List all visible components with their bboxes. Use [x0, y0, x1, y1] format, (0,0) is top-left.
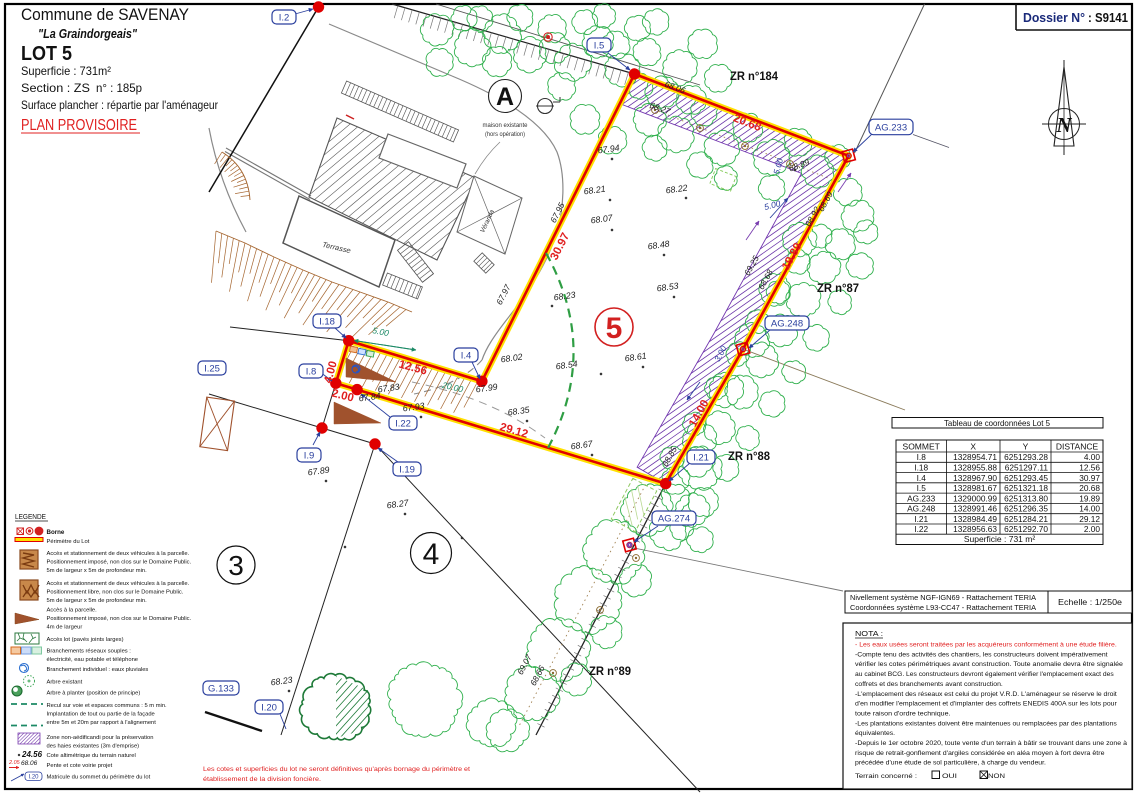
svg-text:au cabinet BCG. Les constructe: au cabinet BCG. Les constructeurs devron…: [855, 671, 1114, 678]
svg-text:Nivellement système NGF-IGN69: Nivellement système NGF-IGN69 - Rattache…: [850, 593, 1036, 602]
svg-text:Les cotes et superficies du lo: Les cotes et superficies du lot ne seron…: [203, 766, 470, 773]
svg-text:précédée d'une étude de sol pa: précédée d'une étude de sol particulière…: [855, 760, 1046, 767]
svg-text:Pente et cote voirie projet: Pente et cote voirie projet: [47, 763, 113, 769]
svg-text:68.06: 68.06: [21, 760, 38, 767]
svg-text:LEGENDE: LEGENDE: [15, 512, 46, 521]
svg-text:N: N: [1055, 113, 1072, 137]
svg-text:I.21: I.21: [914, 514, 928, 524]
svg-text:X: X: [970, 442, 976, 452]
svg-text:Accès lot (pavés joints larges: Accès lot (pavés joints larges): [47, 637, 124, 643]
svg-text:Positionnement imposé, non clo: Positionnement imposé, non clos sur le D…: [47, 560, 192, 566]
svg-text:I.20: I.20: [28, 775, 39, 781]
svg-text:AG.248: AG.248: [771, 318, 803, 329]
svg-text:risque de retrait-gonflement d: risque de retrait-gonflement d'argiles c…: [855, 750, 1105, 757]
svg-text:équivalentes.: équivalentes.: [855, 730, 895, 737]
svg-text:20.68: 20.68: [1079, 483, 1100, 493]
svg-text:Recul sur voie et espaces comm: Recul sur voie et espaces communs : 5 m …: [47, 703, 168, 709]
svg-text:I.2: I.2: [279, 12, 290, 23]
svg-text:DISTANCE: DISTANCE: [1056, 442, 1099, 452]
svg-text:2.00: 2.00: [1084, 524, 1101, 534]
svg-text:Echelle : 1/250e: Echelle : 1/250e: [1058, 598, 1123, 607]
svg-text:Terrain concerné :: Terrain concerné :: [855, 773, 917, 780]
svg-text:-Les plantations existantes do: -Les plantations existantes doivent être…: [855, 720, 1117, 727]
svg-text:Commune de SAVENAY: Commune de SAVENAY: [21, 5, 189, 24]
svg-text:Dossier N°: Dossier N°: [1023, 11, 1085, 25]
svg-text:ZR n°88: ZR n°88: [728, 451, 771, 463]
svg-text:OUI: OUI: [942, 773, 957, 780]
svg-text:(hors opération): (hors opération): [485, 131, 525, 138]
svg-text:Superficie : 731m²: Superficie : 731m²: [21, 64, 111, 78]
svg-text:Zone non-aédificandi pour la p: Zone non-aédificandi pour la préservatio…: [47, 735, 154, 741]
svg-text:AG.248: AG.248: [907, 504, 936, 514]
svg-text:- Les eaux usées seront traité: - Les eaux usées seront traitées par les…: [855, 642, 1117, 649]
svg-text:Implantation de tout ou partie: Implantation de tout ou partie de la faç…: [47, 712, 155, 718]
svg-text:6251293.45: 6251293.45: [1004, 473, 1048, 483]
svg-text:coffrets et des branchements a: coffrets et des branchements avant const…: [855, 681, 1003, 688]
svg-text:I.18: I.18: [319, 316, 335, 327]
svg-text:Cote altimétrique du terrain n: Cote altimétrique du terrain naturel: [47, 753, 136, 759]
svg-text:NON: NON: [988, 773, 1005, 780]
svg-text:I.21: I.21: [693, 452, 709, 463]
svg-text:Coordonnées système L93-CC47: Coordonnées système L93-CC47 - Rattachem…: [850, 603, 1036, 612]
svg-text:toute raison d'ordre technique: toute raison d'ordre technique.: [855, 711, 951, 718]
svg-text:1328956.63: 1328956.63: [953, 524, 997, 534]
svg-text:6251292.70: 6251292.70: [1004, 524, 1048, 534]
svg-text:"La Graindorgeais": "La Graindorgeais": [38, 27, 138, 41]
svg-text:12.56: 12.56: [1079, 463, 1100, 473]
svg-text:I.22: I.22: [395, 418, 411, 429]
svg-text:-L'emplacement des réseaux est: -L'emplacement des réseaux est celui du …: [855, 691, 1117, 698]
svg-text:G.133: G.133: [208, 683, 234, 694]
svg-text:Accès à la parcelle.: Accès à la parcelle.: [47, 608, 98, 614]
svg-text:d'en modifier l'emplacement et: d'en modifier l'emplacement et d'implant…: [855, 701, 1118, 708]
svg-text:4: 4: [423, 538, 440, 571]
svg-text:des haies existantes (3m d'emp: des haies existantes (3m d'emprise): [47, 744, 140, 750]
svg-text:Positionnement libre, non clos: Positionnement libre, non clos sur le Do…: [47, 590, 184, 596]
svg-text:Arbre à planter (position de p: Arbre à planter (position de principe): [47, 691, 141, 697]
svg-text:24.56: 24.56: [21, 750, 43, 759]
svg-text:Positionnement imposé, non clo: Positionnement imposé, non clos sur le D…: [47, 616, 192, 622]
svg-text:1328991.46: 1328991.46: [953, 504, 997, 514]
svg-text:A: A: [496, 83, 514, 111]
svg-text:Branchements réseaux souples :: Branchements réseaux souples :: [47, 649, 132, 655]
svg-text:Accès et stationnement de deux: Accès et stationnement de deux véhicules…: [47, 581, 190, 587]
svg-text:vérifier les cotes périmétriqu: vérifier les cotes périmétriques avant c…: [855, 661, 1123, 668]
svg-text:19.89: 19.89: [1079, 493, 1100, 503]
svg-text:AG.233: AG.233: [875, 122, 907, 133]
svg-text:I.25: I.25: [204, 363, 220, 374]
svg-text:I.9: I.9: [304, 450, 315, 461]
svg-text:6251321.18: 6251321.18: [1004, 483, 1048, 493]
svg-text:Section : ZS: Section : ZS: [21, 81, 90, 95]
svg-text:Matricule du sommet du périmèt: Matricule du sommet du périmètre du lot: [47, 775, 151, 781]
svg-text:6251297.11: 6251297.11: [1005, 463, 1049, 473]
svg-text:Surface plancher : répartie pa: Surface plancher : répartie par l'aménag…: [21, 98, 218, 112]
svg-text:Branchement individuel : eaux: Branchement individuel : eaux pluviales: [47, 667, 149, 673]
svg-text:I.4: I.4: [461, 350, 472, 361]
svg-text:entre 5m et 20m par rapport à: entre 5m et 20m par rapport à l'aligneme…: [47, 720, 157, 726]
svg-text:Borne: Borne: [47, 529, 65, 536]
svg-text:4.00: 4.00: [1084, 452, 1101, 462]
svg-text:NOTA :: NOTA :: [855, 629, 883, 638]
svg-text:Périmètre du Lot: Périmètre du Lot: [47, 539, 90, 545]
svg-text:I.20: I.20: [261, 702, 277, 713]
svg-text:I.8: I.8: [917, 452, 927, 462]
svg-text:n° : 185p: n° : 185p: [96, 81, 142, 95]
svg-text:établissement de la division f: établissement de la division foncière.: [203, 776, 321, 783]
svg-text:4m de largeur: 4m de largeur: [47, 625, 83, 631]
svg-text:AG.274: AG.274: [658, 513, 690, 524]
svg-text:1328981.67: 1328981.67: [953, 483, 997, 493]
svg-text:29.12: 29.12: [1079, 514, 1100, 524]
svg-text:1328954.71: 1328954.71: [953, 452, 997, 462]
svg-text:Y: Y: [1023, 442, 1029, 452]
svg-text:I.5: I.5: [594, 40, 605, 51]
svg-text:ZR n°87: ZR n°87: [817, 283, 859, 295]
svg-text:I.4: I.4: [917, 473, 927, 483]
svg-text:1329000.99: 1329000.99: [953, 493, 997, 503]
svg-text:6251293.28: 6251293.28: [1004, 452, 1048, 462]
svg-text:I.5: I.5: [917, 483, 927, 493]
svg-text:-Depuis le 1er octobre 2020, t: -Depuis le 1er octobre 2020, toute vente…: [855, 740, 1127, 747]
svg-text:I.19: I.19: [399, 464, 415, 475]
svg-text:Accès et stationnement de deux: Accès et stationnement de deux véhicules…: [47, 551, 190, 557]
svg-text:-Compte tenu des activités des: -Compte tenu des activités des chantiers…: [855, 651, 1108, 658]
svg-text:5m de largeur x 5m de profonde: 5m de largeur x 5m de profondeur min.: [47, 598, 148, 604]
svg-text:5: 5: [606, 312, 623, 345]
svg-text:14.00: 14.00: [1079, 504, 1100, 514]
svg-text:PLAN PROVISOIRE: PLAN PROVISOIRE: [21, 117, 137, 134]
svg-text:6251313.80: 6251313.80: [1004, 493, 1048, 503]
svg-text:I.18: I.18: [914, 463, 928, 473]
svg-text:1328955.88: 1328955.88: [953, 463, 997, 473]
svg-text:30.97: 30.97: [1079, 473, 1100, 483]
svg-text:2.05: 2.05: [8, 760, 21, 766]
svg-text:: S9141: : S9141: [1088, 11, 1128, 25]
svg-text:SOMMET: SOMMET: [903, 442, 940, 452]
svg-text:I.8: I.8: [306, 366, 317, 377]
svg-text:Arbre existant: Arbre existant: [47, 680, 83, 686]
svg-text:Superficie : 731 m²: Superficie : 731 m²: [964, 534, 1036, 544]
svg-text:LOT 5: LOT 5: [21, 43, 72, 65]
svg-text:maison existante: maison existante: [483, 122, 529, 129]
svg-text:6251284.21: 6251284.21: [1004, 514, 1048, 524]
svg-text:3: 3: [228, 550, 244, 581]
svg-text:I.22: I.22: [914, 524, 928, 534]
svg-text:5m de largeur x 5m de profonde: 5m de largeur x 5m de profondeur min.: [47, 568, 148, 574]
svg-text:ZR n°89: ZR n°89: [589, 666, 631, 678]
svg-text:AG.233: AG.233: [907, 493, 936, 503]
svg-text:1328984.49: 1328984.49: [953, 514, 997, 524]
svg-text:1328967.90: 1328967.90: [953, 473, 997, 483]
svg-text:6251296.35: 6251296.35: [1004, 504, 1048, 514]
svg-text:électricité, eau potable et té: électricité, eau potable et téléphone: [47, 657, 139, 663]
svg-text:ZR n°184: ZR n°184: [730, 71, 779, 83]
svg-text:Tableau de coordonnées Lot 5: Tableau de coordonnées Lot 5: [944, 419, 1050, 428]
